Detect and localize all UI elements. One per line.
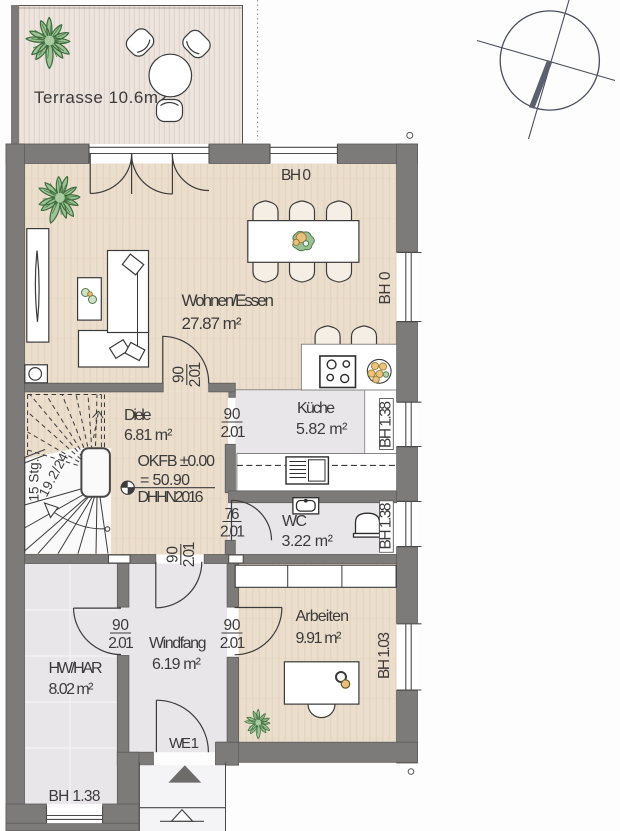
svg-text:2.01: 2.01: [108, 635, 134, 652]
svg-text:90: 90: [171, 366, 188, 383]
svg-text:OKFB ±0.00: OKFB ±0.00: [138, 453, 216, 470]
svg-text:Küche: Küche: [297, 400, 335, 417]
svg-text:27.87 m²: 27.87 m²: [182, 314, 242, 333]
svg-text:90: 90: [224, 406, 241, 423]
svg-text:Diele: Diele: [124, 407, 152, 424]
svg-text:90: 90: [112, 617, 129, 634]
svg-text:WC: WC: [282, 513, 307, 530]
svg-text:HW/HAR: HW/HAR: [49, 660, 103, 677]
svg-text:DHHN2016: DHHN2016: [138, 489, 204, 506]
svg-text:76: 76: [225, 506, 240, 523]
svg-text:8.02 m²: 8.02 m²: [49, 681, 95, 698]
svg-text:BH 0: BH 0: [281, 167, 311, 184]
svg-text:Wohnen/Essen: Wohnen/Essen: [182, 291, 275, 310]
svg-text:BH 1.38: BH 1.38: [378, 401, 395, 448]
svg-text:Arbeiten: Arbeiten: [296, 608, 350, 625]
svg-text:WE 1: WE 1: [169, 735, 199, 752]
svg-text:= 50.90: = 50.90: [140, 472, 190, 489]
svg-text:BH 1.38: BH 1.38: [378, 503, 395, 550]
svg-text:2.01: 2.01: [220, 524, 245, 541]
svg-text:BH 1.03: BH 1.03: [376, 632, 393, 679]
svg-text:2.01: 2.01: [220, 635, 246, 652]
svg-text:3.22 m²: 3.22 m²: [282, 533, 334, 550]
svg-text:2.01: 2.01: [181, 542, 198, 568]
svg-text:15 Stg.: 15 Stg.: [27, 459, 42, 502]
svg-text:2.01: 2.01: [187, 362, 204, 388]
svg-text:90: 90: [224, 617, 241, 634]
svg-text:9.91 m²: 9.91 m²: [296, 630, 343, 647]
svg-text:BH 0: BH 0: [377, 271, 394, 304]
svg-text:90: 90: [165, 546, 182, 563]
svg-text:6.19 m²: 6.19 m²: [152, 656, 202, 673]
svg-text:6.81 m²: 6.81 m²: [124, 427, 173, 444]
svg-text:BH 1.38: BH 1.38: [49, 788, 101, 805]
svg-text:2.01: 2.01: [221, 424, 246, 441]
svg-text:5.82 m²: 5.82 m²: [296, 421, 348, 438]
svg-text:Windfang: Windfang: [149, 635, 207, 652]
svg-text:Terrasse 10.6m2: Terrasse 10.6m2: [34, 88, 168, 107]
